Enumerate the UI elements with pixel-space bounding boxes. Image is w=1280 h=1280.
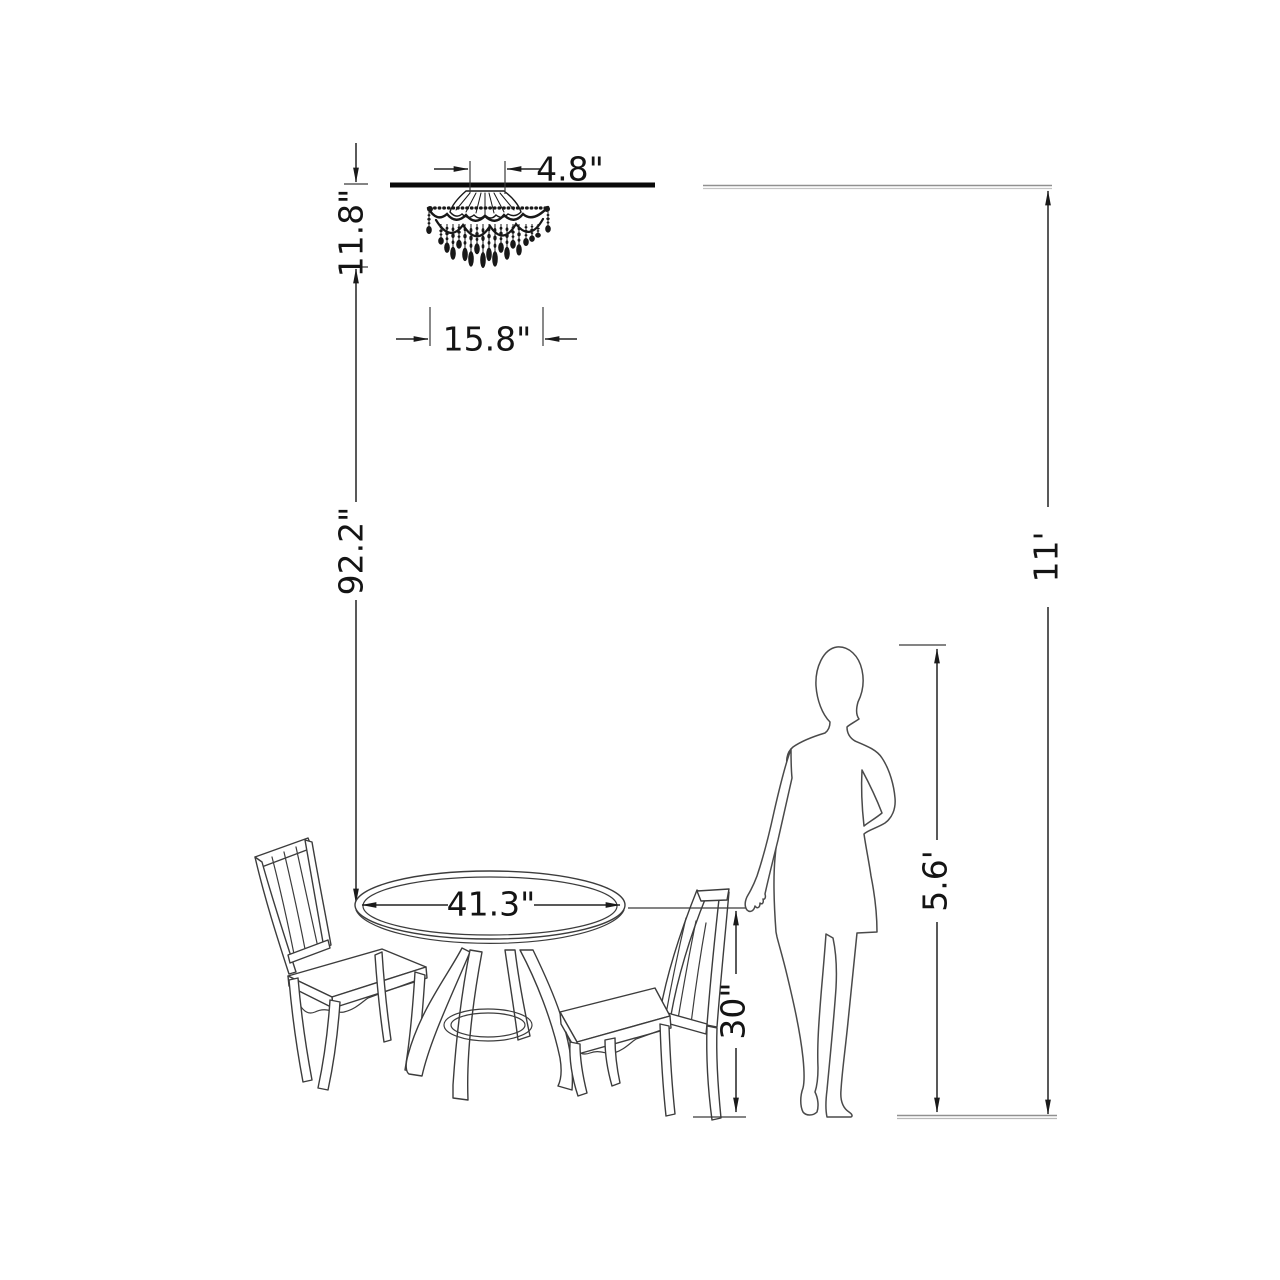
person-height-label: 5.6' <box>916 850 955 912</box>
fixture-to-table-label: 92.2" <box>332 507 371 596</box>
canopy-width-label: 4.8" <box>536 150 604 189</box>
chair-left-drawing <box>255 838 427 1090</box>
table-height-label: 30" <box>714 982 753 1039</box>
dim-fixture-height: 11.8" <box>332 143 371 294</box>
chandelier-drawing <box>426 191 551 268</box>
table-diameter-label: 41.3" <box>447 885 536 924</box>
dim-person-height: 5.6' <box>899 645 955 1112</box>
fixture-height-label: 11.8" <box>332 189 371 278</box>
dim-fixture-width: 15.8" <box>396 307 577 359</box>
ceiling-height-label: 11' <box>1027 531 1066 582</box>
dimension-diagram: 4.8" 11.8" 15.8" 92.2" 11' <box>0 0 1280 1280</box>
fixture-width-label: 15.8" <box>443 320 532 359</box>
dim-ceiling-height: 11' <box>1027 191 1066 1114</box>
ceiling-reference-line <box>703 186 1052 189</box>
floor-reference-line <box>897 1116 1057 1119</box>
diagram-canvas: 4.8" 11.8" 15.8" 92.2" 11' <box>0 0 1280 1280</box>
person-silhouette <box>745 647 895 1117</box>
dim-fixture-to-table: 92.2" <box>332 294 371 903</box>
